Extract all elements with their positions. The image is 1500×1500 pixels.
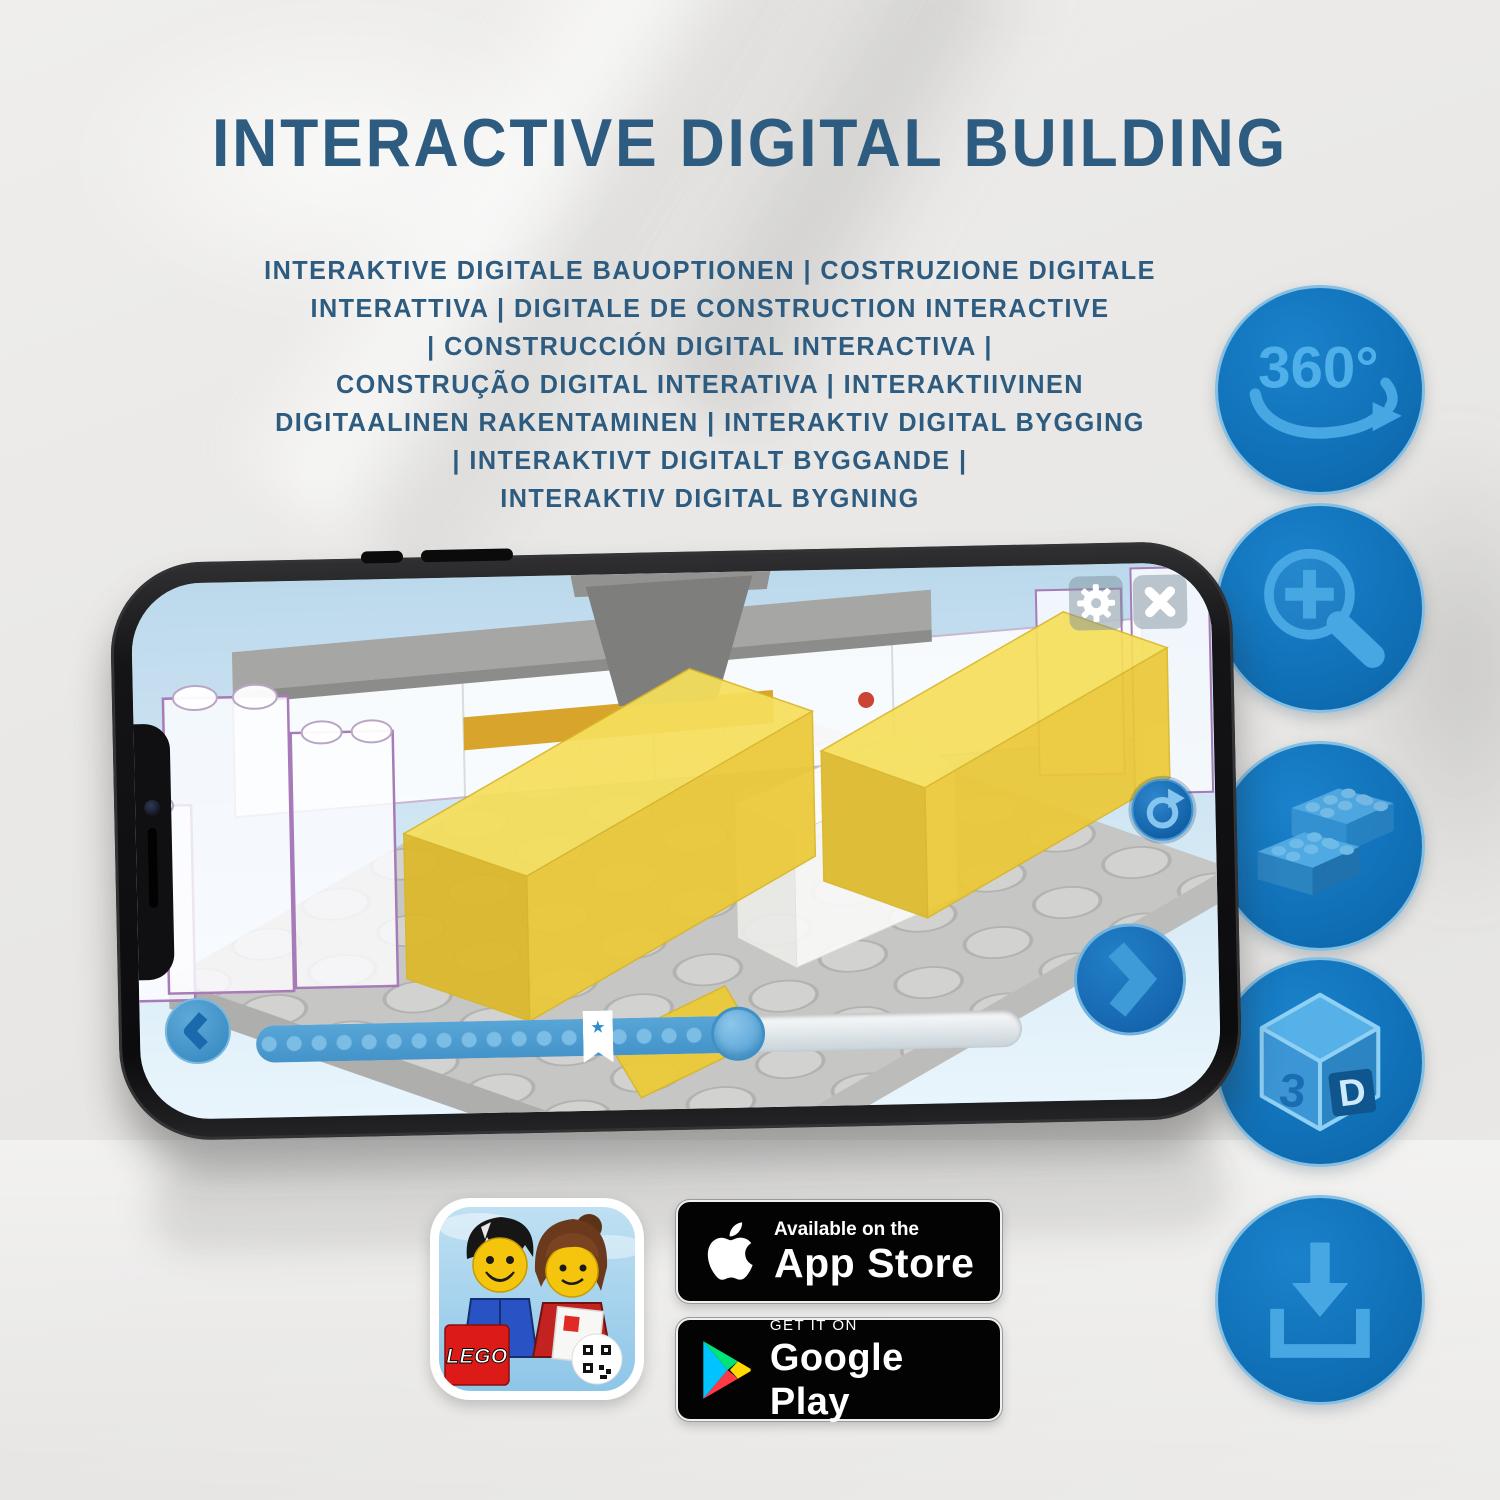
google-play-icon xyxy=(701,1341,753,1399)
360-label: 360° xyxy=(1258,336,1379,401)
close-button[interactable] xyxy=(1133,574,1188,629)
subtitle-line: DIGITAALINEN RAKENTAMINEN | INTERAKTIV D… xyxy=(206,403,1215,441)
camera-icon xyxy=(144,800,160,816)
subtitle-line: CONSTRUÇÃO DIGITAL INTERATIVA | INTERAKT… xyxy=(206,365,1215,403)
app-store-name: App Store xyxy=(774,1241,974,1285)
subtitle-line: INTERATTIVA | DIGITALE DE CONSTRUCTION I… xyxy=(206,289,1215,327)
subtitle-line: | INTERAKTIVT DIGITALT BYGGANDE | xyxy=(206,441,1215,479)
lego-logo: LEGO xyxy=(446,1345,508,1368)
google-play-badge[interactable]: GET IT ON Google Play xyxy=(676,1318,1002,1421)
google-play-name: Google Play xyxy=(770,1336,980,1424)
feature-circle-3d: 3 D xyxy=(1215,957,1425,1167)
360-rotation-icon: 360° xyxy=(1235,305,1405,475)
3d-view-icon: 3 D xyxy=(1235,977,1405,1147)
lego-brick-icon xyxy=(1235,761,1405,931)
phone-notch xyxy=(131,724,174,981)
feature-circle-download xyxy=(1215,1195,1425,1405)
download-icon xyxy=(1235,1215,1405,1385)
feature-circle-zoom xyxy=(1215,503,1425,713)
app-store-tagline: Available on the xyxy=(774,1219,974,1241)
phone-screen: ★ xyxy=(131,562,1222,1121)
zoom-in-icon xyxy=(1235,523,1405,693)
next-step-button[interactable] xyxy=(1073,922,1187,1036)
phone-volume-button xyxy=(421,548,513,562)
feature-circle-360: 360° xyxy=(1215,285,1425,495)
chevron-left-icon xyxy=(166,997,229,1064)
previous-step-button[interactable] xyxy=(164,997,231,1064)
rotate-icon xyxy=(1138,785,1187,834)
chevron-right-icon xyxy=(1076,922,1184,1036)
poster: INTERACTIVE DIGITAL BUILDING INTERAKTIVE… xyxy=(0,0,1500,1500)
apple-icon xyxy=(704,1222,754,1282)
google-play-tagline: GET IT ON xyxy=(770,1316,980,1336)
app-store-badge[interactable]: Available on the App Store xyxy=(676,1200,1002,1303)
phone-mockup: ★ xyxy=(109,540,1243,1141)
subtitle-line: INTERAKTIVE DIGITALE BAUOPTIONEN | COSTR… xyxy=(206,251,1215,289)
feature-circle-brick xyxy=(1215,741,1425,951)
multilingual-subtitle: INTERAKTIVE DIGITALE BAUOPTIONEN | COSTR… xyxy=(206,251,1215,517)
lego-app-icon[interactable]: LEGO xyxy=(430,1198,644,1400)
subtitle-line: INTERAKTIV DIGITAL BYGNING xyxy=(206,479,1215,517)
gear-icon xyxy=(1076,583,1117,624)
cube-d-label: D xyxy=(1336,1069,1368,1114)
rotate-model-button[interactable] xyxy=(1131,778,1194,841)
phone-volume-button xyxy=(361,551,403,564)
lego-minifigures-art: LEGO xyxy=(439,1207,635,1391)
cube-3-label: 3 xyxy=(1277,1062,1309,1117)
page-title: INTERACTIVE DIGITAL BUILDING xyxy=(60,104,1440,182)
speaker-slot xyxy=(148,828,159,908)
subtitle-line: | CONSTRUCCIÓN DIGITAL INTERACTIVA | xyxy=(206,327,1215,365)
settings-button[interactable] xyxy=(1069,576,1124,631)
close-icon xyxy=(1141,582,1180,621)
